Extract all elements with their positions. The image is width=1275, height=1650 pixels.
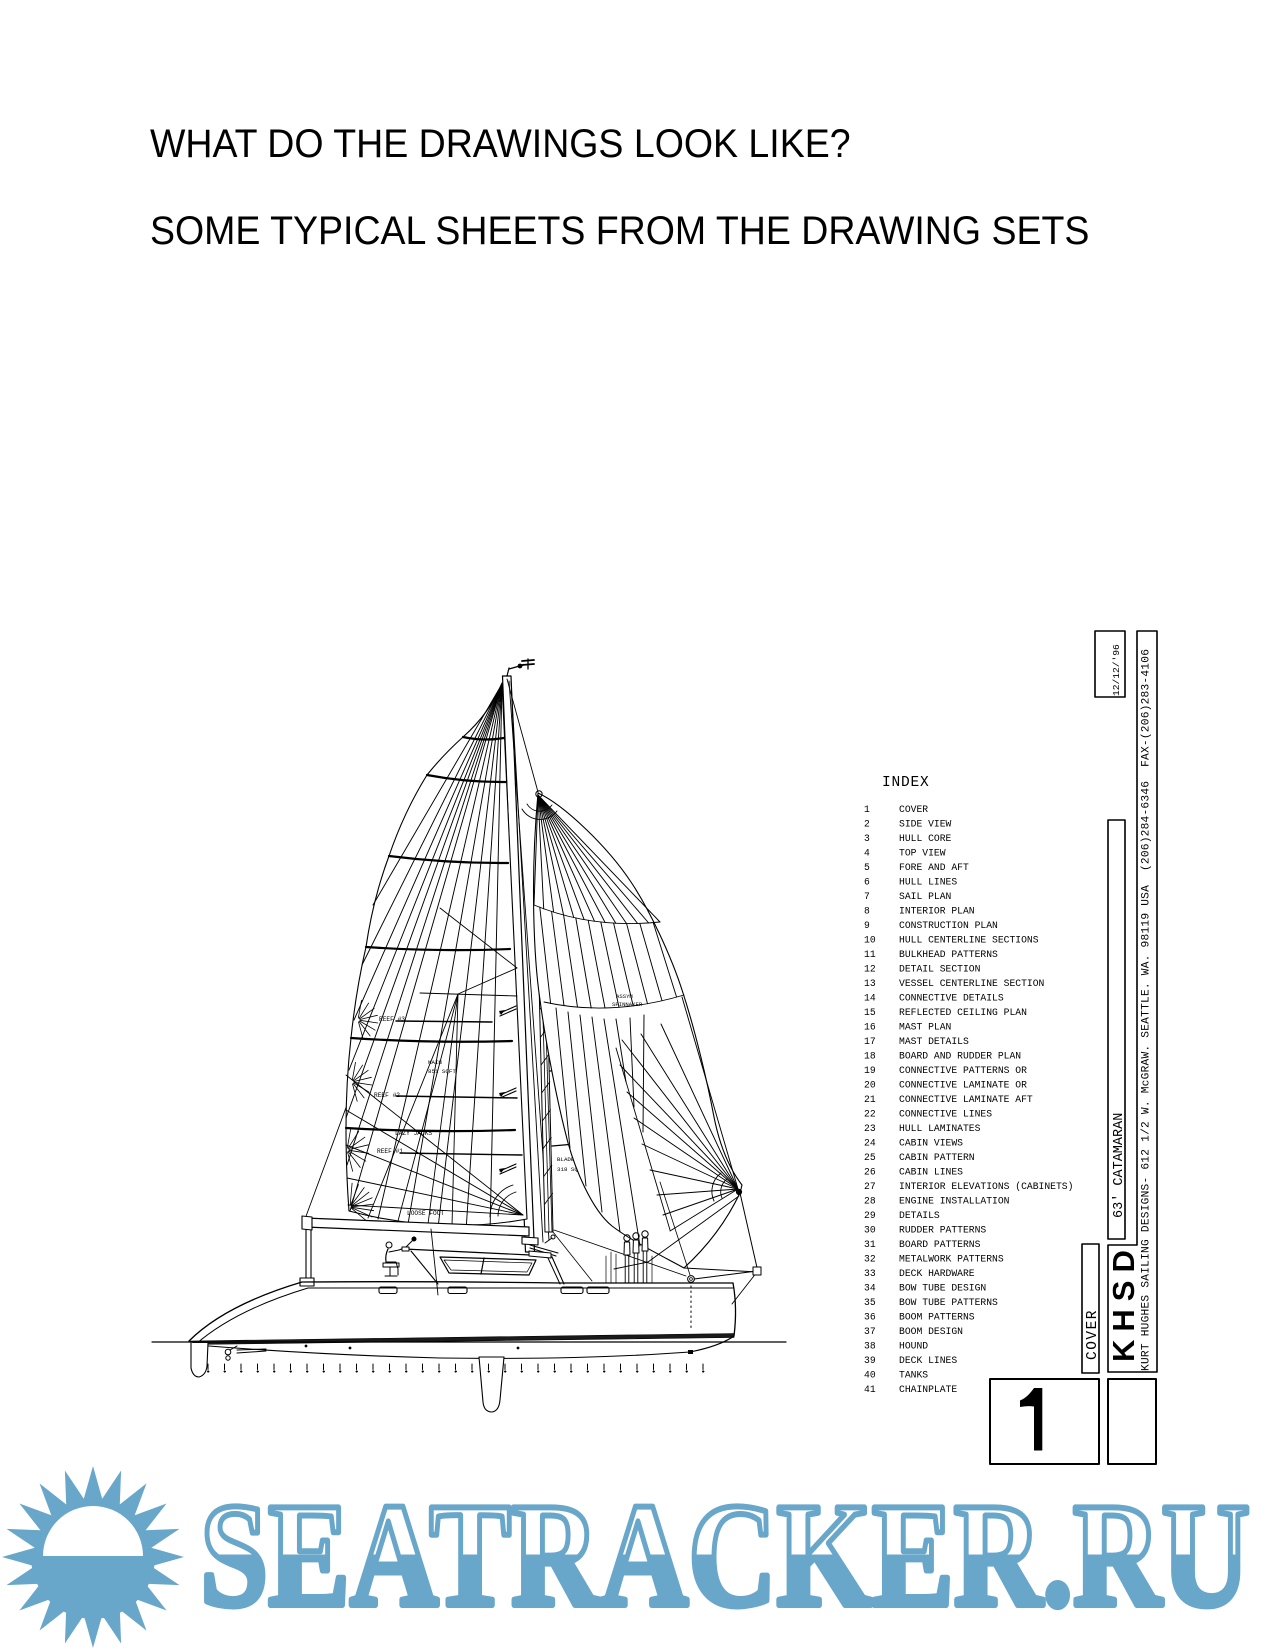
- svg-text:CONNECTIVE LAMINATE OR: CONNECTIVE LAMINATE OR: [899, 1080, 1027, 1091]
- svg-text:MAST PLAN: MAST PLAN: [899, 1022, 952, 1033]
- svg-text:CONNECTIVE LAMINATE AFT: CONNECTIVE LAMINATE AFT: [899, 1094, 1033, 1105]
- svg-text:CABIN PATTERN: CABIN PATTERN: [899, 1152, 975, 1163]
- svg-text:36: 36: [864, 1312, 876, 1323]
- svg-text:5: 5: [864, 862, 870, 873]
- svg-text:BOOM PATTERNS: BOOM PATTERNS: [899, 1312, 975, 1323]
- svg-text:8: 8: [864, 906, 870, 917]
- svg-text:33: 33: [864, 1268, 876, 1279]
- svg-text:1: 1: [864, 804, 870, 815]
- svg-text:26: 26: [864, 1167, 876, 1178]
- svg-text:63' CATAMARAN: 63' CATAMARAN: [1112, 1113, 1127, 1218]
- svg-text:11: 11: [864, 949, 876, 960]
- svg-text:10: 10: [864, 935, 876, 946]
- svg-text:MAIN: MAIN: [428, 1059, 442, 1066]
- svg-text:CHAINPLATE: CHAINPLATE: [899, 1384, 957, 1395]
- svg-text:28: 28: [864, 1196, 876, 1207]
- svg-text:SIDE VIEW: SIDE VIEW: [899, 819, 952, 830]
- svg-text:16: 16: [864, 1022, 876, 1033]
- svg-text:2: 2: [864, 819, 870, 830]
- svg-text:TANKS: TANKS: [899, 1370, 928, 1381]
- svg-text:14: 14: [864, 993, 876, 1004]
- svg-text:BOW TUBE PATTERNS: BOW TUBE PATTERNS: [899, 1297, 998, 1308]
- svg-text:VESSEL CENTERLINE SECTION: VESSEL CENTERLINE SECTION: [899, 978, 1045, 989]
- svg-text:40: 40: [864, 1370, 876, 1381]
- svg-text:27: 27: [864, 1181, 876, 1192]
- svg-text:6: 6: [864, 877, 870, 888]
- svg-text:HULL CENTERLINE SECTIONS: HULL CENTERLINE SECTIONS: [899, 935, 1039, 946]
- svg-text:INTERIOR PLAN: INTERIOR PLAN: [899, 906, 975, 917]
- svg-text:DECK HARDWARE: DECK HARDWARE: [899, 1268, 975, 1279]
- svg-text:CONNECTIVE LINES: CONNECTIVE LINES: [899, 1109, 992, 1120]
- svg-text:4: 4: [864, 848, 870, 859]
- svg-text:21: 21: [864, 1094, 876, 1105]
- svg-text:LAZY JACKS: LAZY JACKS: [395, 1130, 432, 1137]
- svg-text:SEATRACKER.RU: SEATRACKER.RU: [200, 1473, 1250, 1638]
- svg-text:BOARD PATTERNS: BOARD PATTERNS: [899, 1239, 981, 1250]
- svg-text:KHSD: KHSD: [1106, 1242, 1141, 1362]
- svg-text:HULL LAMINATES: HULL LAMINATES: [899, 1123, 981, 1134]
- svg-text:SAIL PLAN: SAIL PLAN: [899, 891, 952, 902]
- svg-text:HOUND: HOUND: [899, 1341, 928, 1352]
- svg-text:12: 12: [864, 964, 876, 975]
- svg-text:25: 25: [864, 1152, 876, 1163]
- svg-text:SPINNAKER: SPINNAKER: [612, 1001, 643, 1008]
- svg-text:CABIN LINES: CABIN LINES: [899, 1167, 963, 1178]
- svg-text:19: 19: [864, 1065, 876, 1076]
- svg-text:MAST DETAILS: MAST DETAILS: [899, 1036, 969, 1047]
- svg-text:34: 34: [864, 1283, 876, 1294]
- svg-text:851 SQFT: 851 SQFT: [428, 1068, 456, 1075]
- svg-text:20: 20: [864, 1080, 876, 1091]
- svg-text:31: 31: [864, 1239, 876, 1250]
- svg-text:HULL LINES: HULL LINES: [899, 877, 957, 888]
- svg-text:BOOM DESIGN: BOOM DESIGN: [899, 1326, 963, 1337]
- svg-text:CONSTRUCTION PLAN: CONSTRUCTION PLAN: [899, 920, 998, 931]
- svg-text:13: 13: [864, 978, 876, 989]
- svg-text:HULL CORE: HULL CORE: [899, 833, 952, 844]
- svg-text:CABIN VIEWS: CABIN VIEWS: [899, 1138, 963, 1149]
- svg-text:TOP VIEW: TOP VIEW: [899, 848, 946, 859]
- svg-text:RUDDER PATTERNS: RUDDER PATTERNS: [899, 1225, 986, 1236]
- svg-text:INTERIOR ELEVATIONS (CABINETS): INTERIOR ELEVATIONS (CABINETS): [899, 1181, 1073, 1192]
- svg-text:32: 32: [864, 1254, 876, 1265]
- svg-text:22: 22: [864, 1109, 876, 1120]
- svg-text:ENGINE INSTALLATION: ENGINE INSTALLATION: [899, 1196, 1010, 1207]
- svg-text:FORE AND AFT: FORE AND AFT: [899, 862, 969, 873]
- svg-text:37: 37: [864, 1326, 876, 1337]
- svg-text:DETAIL SECTION: DETAIL SECTION: [899, 964, 981, 975]
- svg-text:KURT HUGHES SAILING DESIGNS- 6: KURT HUGHES SAILING DESIGNS- 612 1/2 W. …: [1141, 649, 1153, 1371]
- svg-text:BOARD AND RUDDER PLAN: BOARD AND RUDDER PLAN: [899, 1051, 1021, 1062]
- svg-text:LOOSE FOOT: LOOSE FOOT: [407, 1210, 444, 1217]
- svg-text:30: 30: [864, 1225, 876, 1236]
- svg-text:7: 7: [864, 891, 870, 902]
- svg-text:29: 29: [864, 1210, 876, 1221]
- svg-text:23: 23: [864, 1123, 876, 1134]
- svg-text:REEF #2: REEF #2: [374, 1092, 400, 1099]
- svg-text:CONNECTIVE PATTERNS OR: CONNECTIVE PATTERNS OR: [899, 1065, 1027, 1076]
- svg-text:3: 3: [864, 833, 870, 844]
- svg-text:COVER: COVER: [899, 804, 928, 815]
- svg-text:REFLECTED CEILING PLAN: REFLECTED CEILING PLAN: [899, 1007, 1027, 1018]
- svg-text:41: 41: [864, 1384, 876, 1395]
- svg-text:DETAILS: DETAILS: [899, 1210, 940, 1221]
- svg-text:39: 39: [864, 1355, 876, 1366]
- svg-text:INDEX: INDEX: [882, 775, 930, 791]
- svg-text:9: 9: [864, 920, 870, 931]
- svg-text:BOW TUBE DESIGN: BOW TUBE DESIGN: [899, 1283, 986, 1294]
- svg-text:CONNECTIVE DETAILS: CONNECTIVE DETAILS: [899, 993, 1004, 1004]
- svg-text:18: 18: [864, 1051, 876, 1062]
- svg-text:REEF #3: REEF #3: [379, 1016, 405, 1023]
- svg-text:BULKHEAD PATTERNS: BULKHEAD PATTERNS: [899, 949, 998, 960]
- svg-text:38: 38: [864, 1341, 876, 1352]
- svg-text:35: 35: [864, 1297, 876, 1308]
- svg-text:17: 17: [864, 1036, 876, 1047]
- svg-text:24: 24: [864, 1138, 876, 1149]
- svg-text:12/12/'96: 12/12/'96: [1111, 644, 1122, 696]
- svg-text:ASSYM: ASSYM: [616, 993, 633, 1000]
- svg-text:DECK LINES: DECK LINES: [899, 1355, 957, 1366]
- svg-text:METALWORK PATTERNS: METALWORK PATTERNS: [899, 1254, 1004, 1265]
- svg-text:COVER: COVER: [1085, 1309, 1101, 1360]
- svg-text:15: 15: [864, 1007, 876, 1018]
- svg-text:REEF #1: REEF #1: [377, 1148, 403, 1155]
